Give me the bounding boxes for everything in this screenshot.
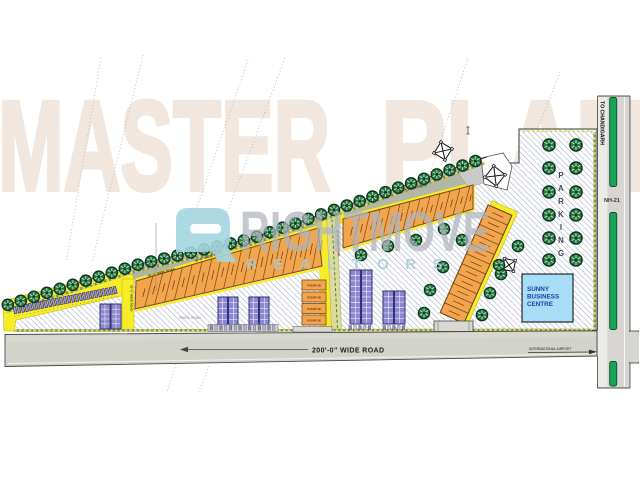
svg-text:CENTRE: CENTRE [527, 301, 553, 308]
svg-text:P: P [558, 171, 563, 180]
svg-text:TO CHANDIGARH: TO CHANDIGARH [598, 101, 604, 145]
svg-text:RIGHTMOVE: RIGHTMOVE [240, 199, 490, 263]
svg-text:PUSHP-3B: PUSHP-3B [307, 296, 321, 300]
svg-text:I: I [560, 223, 562, 232]
svg-text:SUNNY: SUNNY [527, 286, 550, 293]
svg-text:G: G [558, 249, 564, 258]
svg-text:N: N [558, 236, 564, 245]
svg-text:NH-21: NH-21 [604, 198, 620, 204]
svg-text:MASTER: MASTER [0, 74, 330, 217]
svg-text:R: R [558, 197, 564, 206]
svg-text:PAVED ROAD: PAVED ROAD [179, 316, 201, 320]
svg-text:200'-0" WIDE ROAD: 200'-0" WIDE ROAD [312, 348, 384, 355]
svg-text:PUSHP-3B: PUSHP-3B [307, 307, 321, 311]
svg-text:PUSHP-3B: PUSHP-3B [307, 319, 321, 323]
svg-text:BUSINESS: BUSINESS [527, 294, 559, 301]
svg-text:30'-0" WIDE ROAD: 30'-0" WIDE ROAD [130, 285, 134, 312]
svg-text:K: K [558, 210, 564, 219]
svg-text:A: A [558, 184, 564, 193]
svg-text:PUSHP-3B: PUSHP-3B [307, 284, 321, 288]
svg-text:REALTORS: REALTORS [246, 256, 459, 273]
svg-text:INTERNATIONAL AIRPORT: INTERNATIONAL AIRPORT [529, 347, 572, 351]
